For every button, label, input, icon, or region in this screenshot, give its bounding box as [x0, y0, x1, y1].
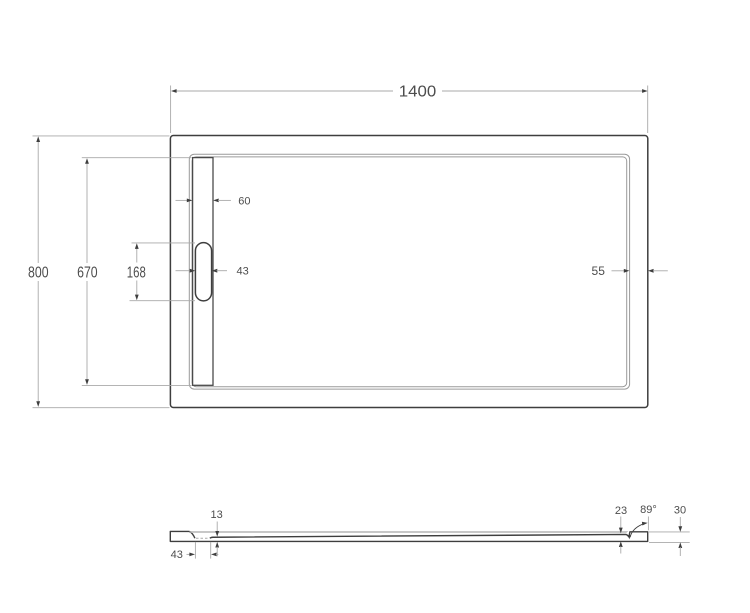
svg-text:43: 43: [171, 549, 183, 561]
svg-text:1400: 1400: [399, 84, 437, 101]
svg-text:60: 60: [238, 195, 250, 207]
svg-text:30: 30: [674, 505, 686, 517]
svg-text:670: 670: [77, 264, 98, 281]
svg-text:43: 43: [236, 266, 248, 278]
svg-text:800: 800: [28, 264, 49, 281]
svg-text:55: 55: [592, 264, 606, 278]
svg-text:23: 23: [615, 505, 627, 517]
svg-text:89°: 89°: [640, 504, 657, 516]
svg-text:168: 168: [127, 264, 146, 281]
svg-text:13: 13: [210, 509, 222, 521]
